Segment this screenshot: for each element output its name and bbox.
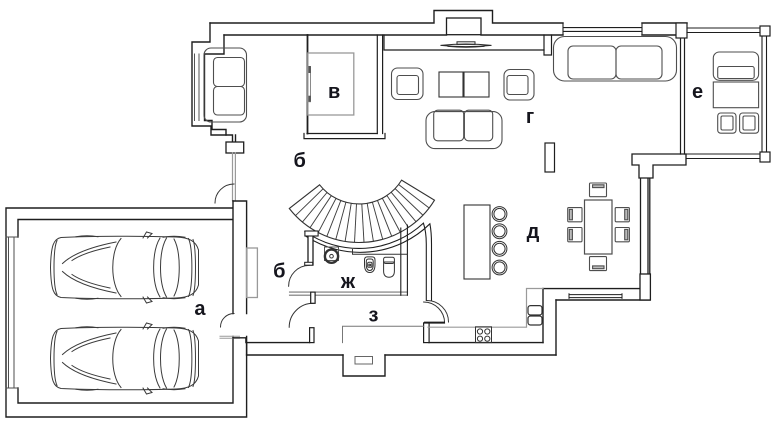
svg-text:д: д	[527, 221, 540, 243]
svg-text:б: б	[273, 261, 285, 283]
svg-text:в: в	[328, 81, 340, 103]
svg-text:г: г	[526, 106, 534, 128]
svg-text:з: з	[369, 304, 379, 326]
svg-text:ж: ж	[340, 271, 356, 293]
svg-text:б: б	[294, 150, 306, 172]
svg-text:е: е	[692, 81, 703, 103]
svg-text:а: а	[194, 298, 206, 320]
